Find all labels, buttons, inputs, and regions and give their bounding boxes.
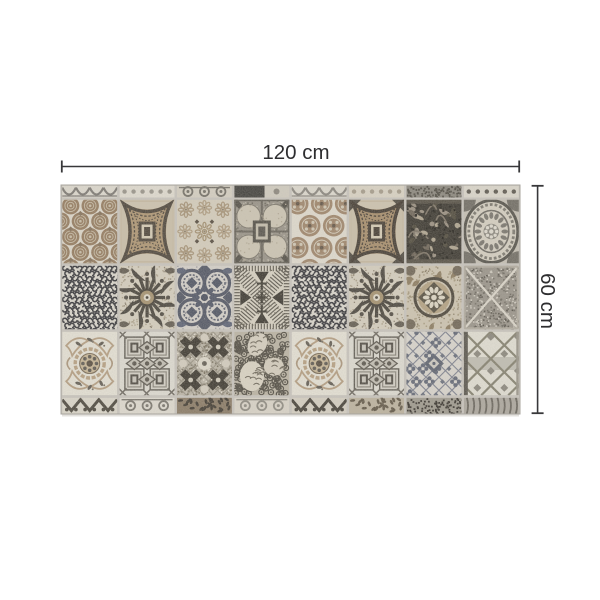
- svg-text:60 cm: 60 cm: [536, 273, 559, 329]
- svg-text:120 cm: 120 cm: [262, 141, 329, 164]
